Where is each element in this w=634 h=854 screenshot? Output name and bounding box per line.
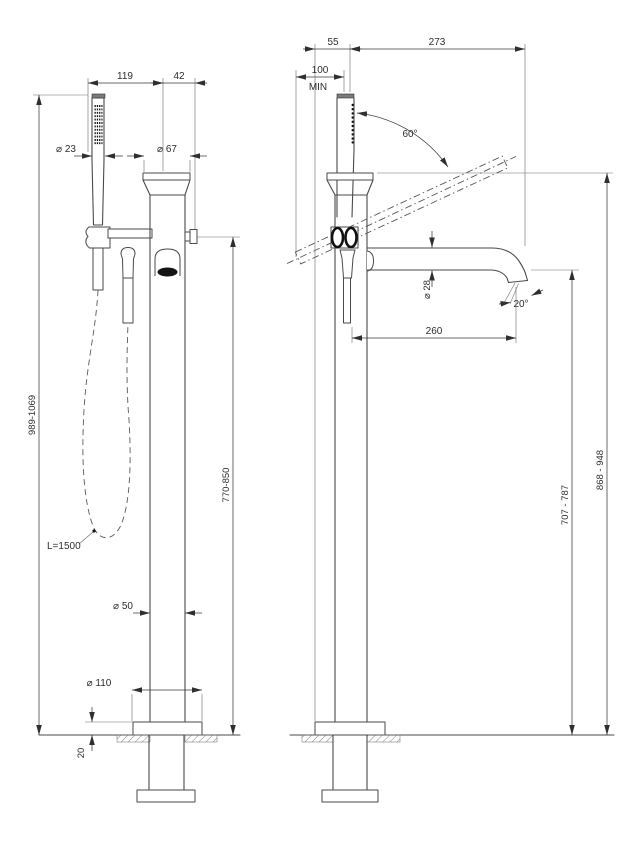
- front-view-dimensions: 119 42 ⌀ 23 ⌀ 67 989-1069 770-850 L=1500: [27, 71, 240, 758]
- spout-end-face: [509, 281, 528, 283]
- side-view-dimensions: 55 273 100 MIN 60° ⌀ 28 20° 260: [296, 37, 613, 735]
- dim-label-55: 55: [327, 37, 339, 48]
- dim-label-989-1069: 989-1069: [27, 395, 38, 435]
- rotation-arc: [357, 113, 448, 167]
- floor-hatch-side-left: [302, 735, 333, 742]
- hose-stem-side: [344, 278, 351, 323]
- dim-label-d67: ⌀ 67: [157, 144, 177, 155]
- dim-label-100: 100: [312, 65, 329, 76]
- column-top-cone: [143, 180, 190, 195]
- technical-drawing-page: 119 42 ⌀ 23 ⌀ 67 989-1069 770-850 L=1500: [0, 0, 634, 854]
- base-plate-side: [315, 722, 385, 735]
- dim-label-d28: ⌀ 28: [422, 280, 433, 299]
- hose-outlet-stem: [123, 278, 133, 323]
- dim-label-119: 119: [117, 71, 133, 82]
- dim-label-273: 273: [429, 37, 446, 48]
- hose-length-label: L=1500: [47, 541, 81, 552]
- lever-handle-side: [340, 250, 355, 278]
- hose-dashed-loop: [83, 290, 130, 538]
- dim-label-min: MIN: [309, 82, 327, 93]
- handshower-side-taper: [352, 150, 354, 217]
- dim-label-868-948: 868 - 948: [595, 450, 606, 490]
- underfloor-flange-side: [322, 790, 378, 802]
- column-top-cap: [143, 173, 190, 180]
- side-view: 55 273 100 MIN 60° ⌀ 28 20° 260: [287, 37, 614, 802]
- handshower-side-top-cap: [337, 94, 354, 98]
- column-top-cap-side: [327, 173, 373, 180]
- spout-root-bulge: [367, 251, 374, 271]
- dim-label-770-850: 770-850: [221, 468, 232, 503]
- dim-label-20: 20: [76, 748, 87, 759]
- bracket-pivot-right: [346, 228, 357, 247]
- hose-leader-dot: [92, 529, 95, 532]
- diverter-knob: [190, 230, 197, 244]
- column-top-cone-side: [327, 180, 373, 195]
- dim-label-60deg: 60°: [402, 129, 417, 140]
- holder-arm: [108, 229, 152, 238]
- dim-label-42: 42: [173, 71, 185, 82]
- front-view-fixture: [39, 94, 240, 802]
- floor-hatch-side-right: [367, 735, 400, 742]
- floor-hatch-front-left: [117, 735, 150, 742]
- spout-outlet-front: [158, 268, 178, 277]
- side-view-fixture: [287, 94, 614, 802]
- underfloor-flange-front: [137, 790, 195, 802]
- spout-outer-edge: [367, 248, 528, 281]
- dim-label-d23: ⌀ 23: [56, 144, 76, 155]
- faucet-dimension-drawing: 119 42 ⌀ 23 ⌀ 67 989-1069 770-850 L=1500: [0, 0, 634, 854]
- floor-hatch-front-right: [185, 735, 217, 742]
- dim-label-d50: ⌀ 50: [113, 601, 133, 612]
- dim-label-260: 260: [426, 326, 443, 337]
- hose-outlet: [121, 248, 135, 279]
- handshower-top-cap: [92, 94, 105, 98]
- spout-inner-edge: [367, 270, 509, 283]
- handshower-spray-grid: [95, 106, 103, 143]
- handshower-holder-bracket: [86, 227, 110, 248]
- dim-label-d110: ⌀ 110: [87, 678, 112, 689]
- base-plate-front: [133, 722, 202, 735]
- front-view: 119 42 ⌀ 23 ⌀ 67 989-1069 770-850 L=1500: [27, 71, 240, 802]
- dim-label-707-787: 707 - 787: [560, 485, 571, 525]
- handshower-hose-stub: [93, 248, 103, 290]
- bracket-pivot-left: [332, 228, 343, 247]
- diverter-knob-neck: [185, 232, 190, 241]
